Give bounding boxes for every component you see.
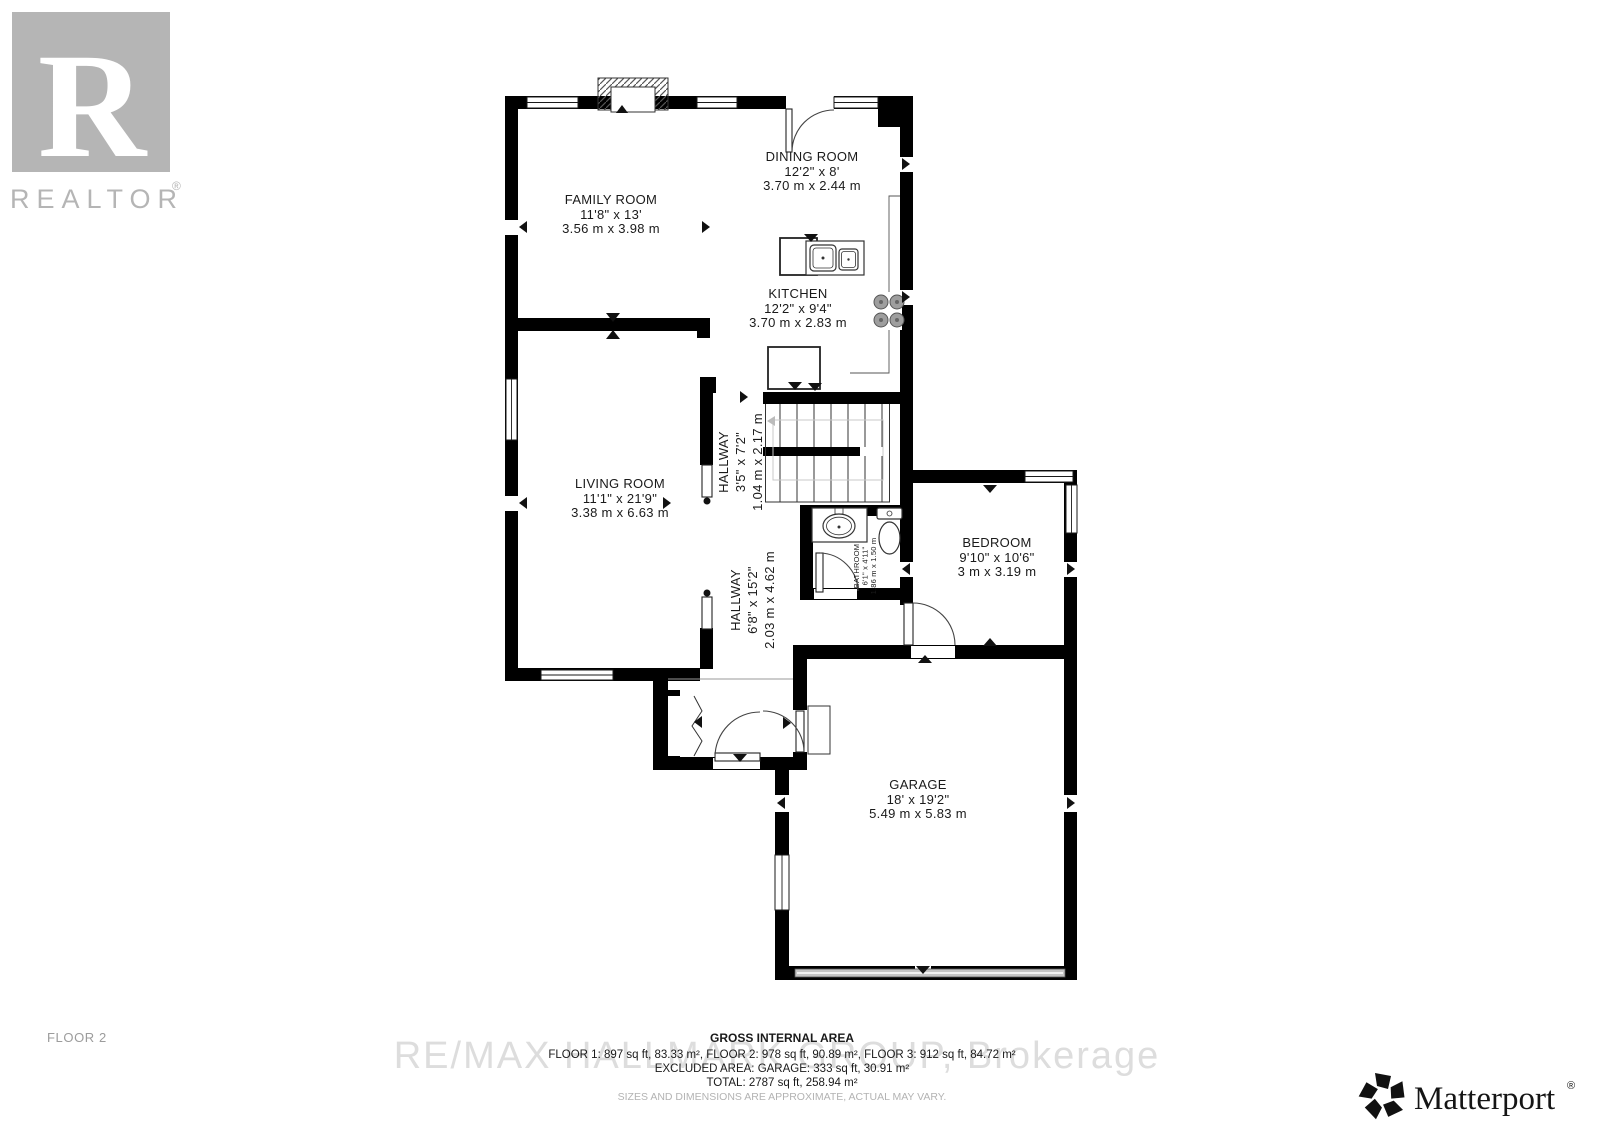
kitchen-sink [806,241,864,275]
garage-door [795,969,1065,977]
garage-metric: 5.49 m x 5.83 m [869,806,967,821]
matterport-pinwheel-icon [1359,1073,1408,1119]
hallway-upper-imperial: 3'5" x 7'2" [733,432,748,492]
realtor-r-icon: R [38,23,148,189]
room-label-kitchen: KITCHEN 12'2" x 9'4" 3.70 m x 2.83 m [749,286,847,330]
hallway-lower-name: HALLWAY [728,569,743,631]
dining-room-imperial: 12'2" x 8' [784,164,839,179]
kitchen-name: KITCHEN [768,286,827,301]
room-label-dining-room: DINING ROOM 12'2" x 8' 3.70 m x 2.44 m [763,149,861,193]
family-room-metric: 3.56 m x 3.98 m [562,221,660,236]
realtor-logo: R REALTOR ® [10,12,184,214]
stove [872,292,904,330]
living-room-name: LIVING ROOM [575,476,665,491]
bedroom-metric: 3 m x 3.19 m [958,564,1037,579]
living-room-imperial: 11'1" x 21'9" [583,491,657,506]
realtor-reg-mark: ® [172,179,181,193]
floor-label: FLOOR 2 [47,1030,107,1045]
fireplace [598,78,668,112]
matterport-wordmark: Matterport [1414,1081,1555,1117]
dining-room-name: DINING ROOM [766,149,859,164]
matterport-reg-mark: ® [1567,1080,1575,1092]
garage-name: GARAGE [889,777,946,792]
hallway-lower-metric: 2.03 m x 4.62 m [762,551,777,649]
room-label-hallway-lower: HALLWAY 6'8" x 15'2" 2.03 m x 4.62 m [728,551,777,649]
room-label-garage: GARAGE 18' x 19'2" 5.49 m x 5.83 m [869,777,967,821]
area-summary-title: GROSS INTERNAL AREA [710,1031,854,1045]
dining-room-metric: 3.70 m x 2.44 m [763,178,861,193]
hallway-door-lower [702,590,712,630]
stairs-direction-arrow-icon [767,416,775,426]
room-label-bedroom: BEDROOM 9'10" x 10'6" 3 m x 3.19 m [958,535,1037,579]
family-room-name: FAMILY ROOM [565,192,657,207]
front-door [715,712,760,761]
hallway-upper-name: HALLWAY [716,431,731,493]
bedroom-imperial: 9'10" x 10'6" [959,550,1034,565]
living-room-metric: 3.38 m x 6.63 m [571,505,669,520]
realtor-wordmark: REALTOR [10,184,184,214]
bathroom-metric: 1.86 m x 1.50 m [869,538,878,595]
room-label-bathroom: BATHROOM 6'1" x 4'11" 1.86 m x 1.50 m [852,538,878,595]
area-summary-disclaimer: SIZES AND DIMENSIONS ARE APPROXIMATE, AC… [618,1091,947,1103]
hallway-door-upper [702,465,712,505]
garage-imperial: 18' x 19'2" [887,792,950,807]
garage-step [808,706,830,754]
family-room-imperial: 11'8" x 13' [580,207,642,222]
hallway-lower-imperial: 6'8" x 15'2" [745,566,760,634]
matterport-logo: Matterport ® [1359,1073,1575,1119]
floorplan-canvas: R REALTOR ® [0,0,1600,1132]
kitchen-metric: 3.70 m x 2.83 m [749,315,847,330]
area-summary-excluded: EXCLUDED AREA: GARAGE: 333 sq ft, 30.91 … [655,1063,910,1075]
bedroom-name: BEDROOM [962,535,1031,550]
area-summary-floors: FLOOR 1: 897 sq ft, 83.33 m², FLOOR 2: 9… [548,1049,1015,1061]
room-label-family-room: FAMILY ROOM 11'8" x 13' 3.56 m x 3.98 m [562,192,660,236]
bedroom-door [904,603,955,645]
room-label-living-room: LIVING ROOM 11'1" x 21'9" 3.38 m x 6.63 … [571,476,669,520]
toilet [877,508,902,554]
kitchen-imperial: 12'2" x 9'4" [764,301,832,316]
hallway-upper-metric: 1.04 m x 2.17 m [750,413,765,511]
bathroom-sink [812,508,867,542]
dining-door [786,109,834,152]
garage-entry-door [763,711,804,752]
doors [692,109,955,761]
area-summary-total: TOTAL: 2787 sq ft, 258.94 m² [706,1077,857,1089]
room-label-hallway-upper: HALLWAY 3'5" x 7'2" 1.04 m x 2.17 m [716,413,765,511]
